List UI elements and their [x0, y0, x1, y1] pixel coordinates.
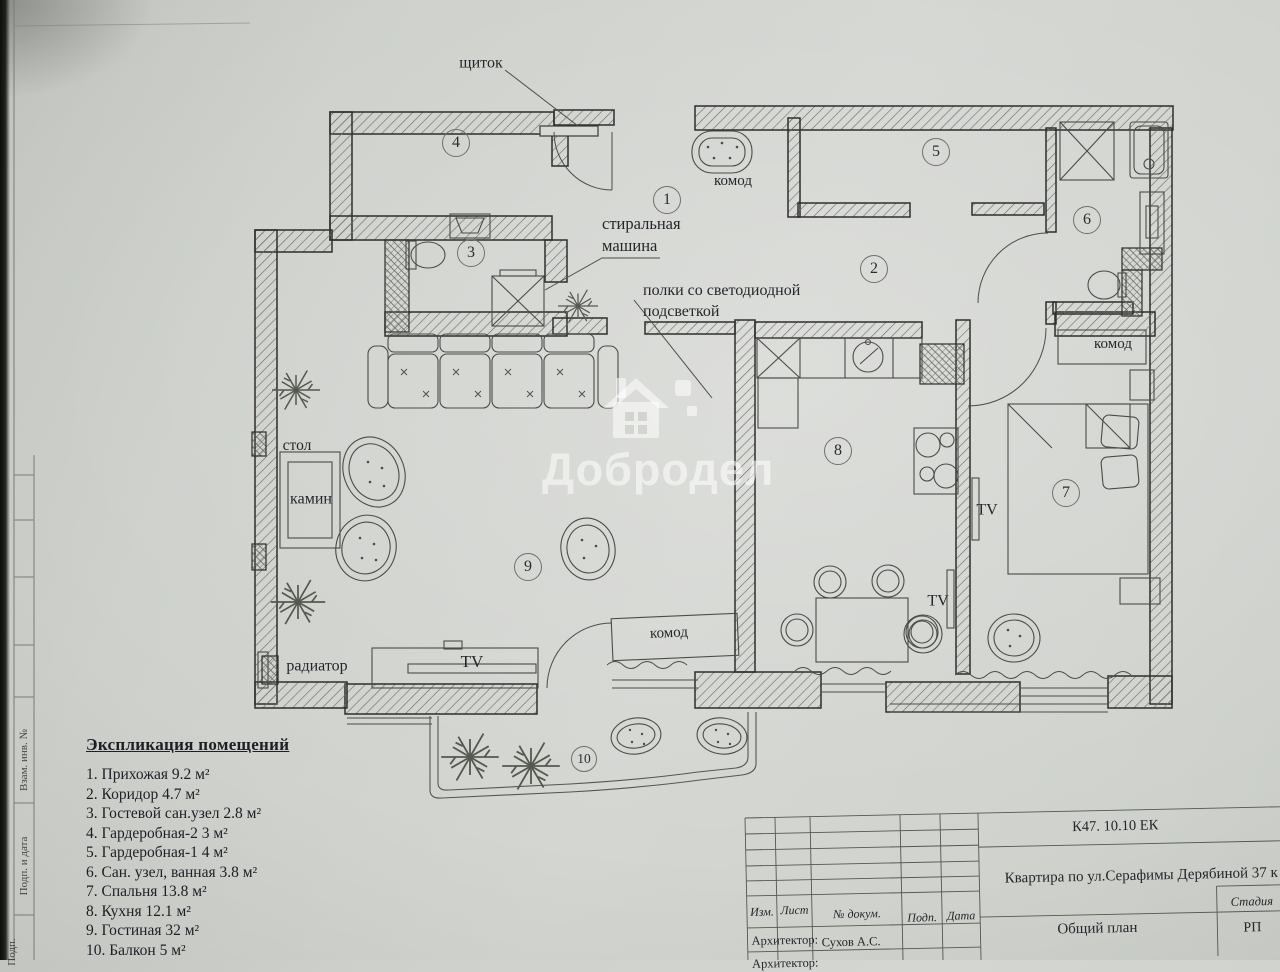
label-washing-machine: стиральная машина: [602, 213, 681, 257]
titleblock-architect-label-2: Архитектор:: [752, 955, 819, 971]
dining-chair: [781, 614, 813, 646]
bedroom-armchair: [988, 614, 1040, 662]
kitchen-counter: [757, 338, 922, 428]
titleblock-col-data: Дата: [942, 908, 980, 924]
label-tv-kitchen: TV: [927, 590, 948, 611]
legend-item: 2. Коридор 4.7 м²: [86, 785, 426, 805]
room-number-8: 8: [824, 437, 852, 465]
titleblock-architect-name: Сухов А.С.: [821, 934, 880, 950]
legend-item: 3. Гостевой сан.узел 2.8 м²: [86, 804, 426, 824]
legend-item: 9. Гостиная 32 м²: [86, 921, 426, 941]
dresser-hallway: [692, 131, 752, 173]
room-number-3: 3: [457, 239, 485, 267]
legend-item: 10. Балкон 5 м²: [86, 941, 426, 961]
legend-item: 8. Кухня 12.1 м²: [86, 902, 426, 922]
balcony-chair: [695, 715, 749, 757]
titleblock-doc-title: Общий план: [987, 918, 1207, 940]
room-number-4: 4: [442, 129, 470, 157]
frame-label-podp: Подп.: [6, 938, 18, 965]
sofa: [368, 334, 618, 408]
room-number-1: 1: [653, 186, 681, 214]
wc-toilet: [406, 241, 445, 269]
titleblock-architect-label: Архитектор:: [751, 933, 818, 949]
titleblock-col-list: Лист: [777, 903, 812, 919]
room-number-9: 9: [514, 553, 542, 581]
stove: [914, 428, 958, 494]
titleblock-col-izm: Изм.: [747, 904, 777, 920]
legend-item: 1. Прихожая 9.2 м²: [86, 765, 426, 785]
electrical-panel: [540, 126, 598, 136]
dining-chair: [814, 566, 846, 598]
dining-chair: [872, 565, 904, 597]
room-number-5: 5: [922, 138, 950, 166]
tv-stand: [372, 641, 538, 688]
titleblock-project: Квартира по ул.Серафимы Дерябиной 37 к: [991, 865, 1280, 888]
room-number-6: 6: [1073, 206, 1101, 234]
room-legend: Экспликация помещений 1. Прихожая 9.2 м²…: [86, 735, 426, 960]
label-electrical-panel: щиток: [459, 52, 502, 73]
label-tv-living: TV: [461, 651, 484, 673]
label-dresser-bedroom: комод: [1094, 335, 1132, 355]
label-led-shelves: полки со светодиодной подсветкой: [643, 280, 800, 322]
label-radiator: радиатор: [286, 655, 347, 676]
label-tv-bedroom: TV: [976, 499, 997, 520]
room-number-10: 10: [571, 746, 597, 772]
frame-label-podp-data: Подп. и дата: [18, 837, 30, 896]
walls-hatched: [255, 106, 1173, 714]
frame-label-vzam: Взам. инв. №: [18, 729, 30, 791]
titleblock-code: К47. 10.10 ЕК: [985, 816, 1245, 838]
titleblock-col-podp: Подп.: [902, 910, 942, 926]
bath-toilet: [1088, 271, 1126, 299]
room-number-7: 7: [1052, 479, 1080, 507]
titleblock: К47. 10.10 ЕК Квартира по ул.Серафимы Де…: [745, 807, 1280, 968]
dining-table: [816, 598, 908, 662]
legend-title: Экспликация помещений: [86, 735, 426, 755]
balcony-chair: [609, 715, 664, 758]
label-dresser-living: комод: [650, 623, 689, 644]
label-table: стол: [283, 436, 312, 456]
legend-item: 6. Сан. узел, ванная 3.8 м²: [86, 863, 426, 883]
titleblock-stage-value: РП: [1217, 920, 1280, 937]
legend-item: 7. Спальня 13.8 м²: [86, 882, 426, 902]
kitchen-sink: [853, 340, 883, 373]
legend-item: 4. Гардеробная-2 3 м²: [86, 824, 426, 844]
room-number-2: 2: [860, 255, 888, 283]
label-dresser-hallway: комод: [714, 172, 752, 192]
armchair: [332, 427, 417, 518]
armchair: [556, 514, 620, 584]
legend-item: 5. Гардеробная-1 4 м²: [86, 843, 426, 863]
label-fireplace: камин: [290, 488, 332, 509]
titleblock-stage-label: Стадия: [1217, 894, 1280, 910]
titleblock-col-dokum: № докум.: [812, 906, 902, 923]
